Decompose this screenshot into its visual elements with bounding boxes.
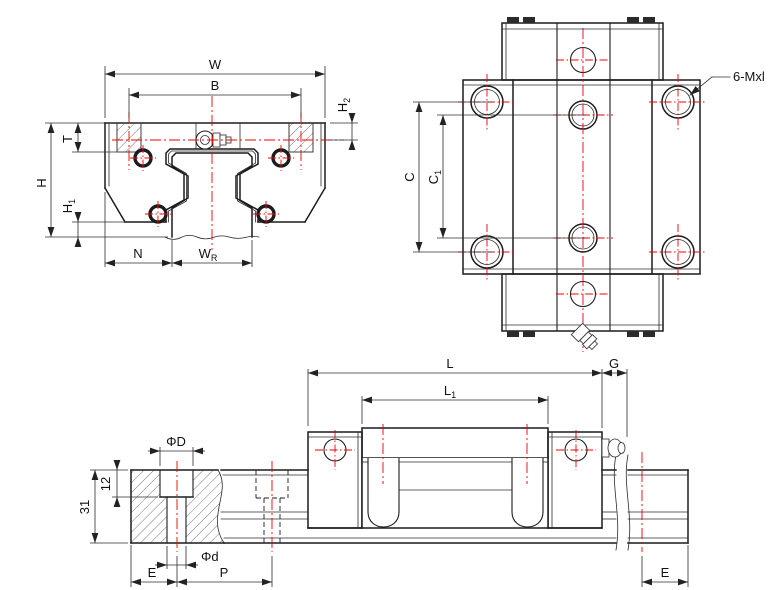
top-block-outline <box>463 17 700 337</box>
dim-label-c: C <box>402 172 417 181</box>
dim-label-12: 12 <box>98 477 113 491</box>
front-view: W B H T H1 <box>34 57 358 267</box>
dim-label-l: L <box>446 356 453 371</box>
top-view: C C1 6-Mxl <box>402 17 765 352</box>
dim-label-phiD: ΦD <box>166 434 186 449</box>
dim-G: G <box>602 356 627 437</box>
dim-label-h: H <box>34 178 49 187</box>
dim-label-l1: L1 <box>444 383 456 400</box>
dim-B: B <box>129 78 301 118</box>
dim-T: T <box>60 123 117 152</box>
dim-L1: L1 <box>362 383 548 424</box>
top-centerlines <box>458 28 707 352</box>
dim-label-h2: H2 <box>335 98 352 112</box>
block-side <box>308 428 625 528</box>
grease-nipple-side <box>602 439 625 457</box>
thread-callout: 6-Mxl <box>690 69 765 95</box>
dim-label-c1: C1 <box>426 170 443 184</box>
thread-note-label: 6-Mxl <box>733 69 765 84</box>
dim-label-w: W <box>209 57 222 72</box>
dim-label-t: T <box>60 135 75 143</box>
side-view: L G L1 31 12 <box>77 356 688 587</box>
dim-phiD: ΦD <box>148 434 205 466</box>
dim-E-right: E <box>642 545 688 587</box>
dim-label-n: N <box>133 246 142 261</box>
front-centerlines <box>112 96 344 250</box>
dim-H: H <box>34 123 168 237</box>
dim-label-p: P <box>220 565 229 580</box>
dim-label-e-left: E <box>148 565 157 580</box>
dim-label-h1: H1 <box>60 199 77 213</box>
dim-label-wr: WR <box>199 246 218 263</box>
dim-label-phid: Φd <box>201 549 219 564</box>
rail-section <box>131 470 224 543</box>
dim-C1: C1 <box>426 115 586 238</box>
mounting-holes-top <box>471 48 694 307</box>
dim-C: C <box>402 102 492 252</box>
dim-H2: H2 <box>328 98 358 150</box>
dim-phid: Φd <box>155 546 219 569</box>
dim-label-g: G <box>609 356 619 371</box>
drawing-canvas: W B H T H1 <box>0 0 770 590</box>
grease-nipple-top <box>571 323 600 352</box>
dim-label-e-right: E <box>661 565 670 580</box>
dim-label-b: B <box>211 78 220 93</box>
drawing-page: W B H T H1 <box>0 0 770 590</box>
dim-label-31: 31 <box>77 500 92 514</box>
